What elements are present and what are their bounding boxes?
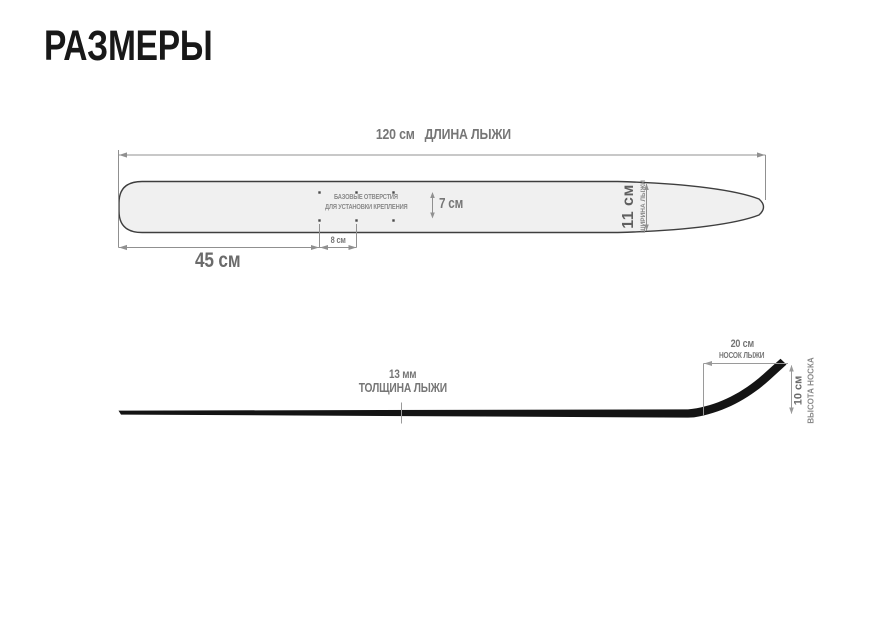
tip-height-caption: ВЫСОТА НОСКА bbox=[806, 357, 815, 423]
thickness-dimension-label: 13 мм ТОЛЩИНА ЛЫЖИ bbox=[323, 368, 483, 395]
holes-note-line2: ДЛЯ УСТАНОВКИ КРЕПЛЕНИЯ bbox=[325, 203, 407, 213]
length-value: 120 см bbox=[375, 126, 414, 143]
length-dimension-label: 120 смДЛИНА ЛЫЖИ bbox=[293, 126, 593, 143]
width-dimension-label: 11 см ШИРИНА ЛЫЖИ bbox=[573, 146, 693, 266]
hole-column-spacing-label: 8 см bbox=[313, 235, 363, 245]
tail-to-holes-label: 45 см bbox=[158, 249, 278, 273]
width-value: 11 см bbox=[619, 184, 637, 229]
width-caption: ШИРИНА ЛЫЖИ bbox=[639, 180, 646, 233]
page-title: РАЗМЕРЫ bbox=[44, 24, 260, 68]
length-caption: ДЛИНА ЛЫЖИ bbox=[424, 126, 510, 143]
thickness-caption: ТОЛЩИНА ЛЫЖИ bbox=[359, 381, 447, 395]
thickness-value: 13 мм bbox=[389, 368, 416, 381]
diagram-drawing bbox=[0, 0, 875, 619]
ski-dimensions-diagram: РАЗМЕРЫ 120 смДЛИНА ЛЫЖИ БАЗОВЫЕ ОТВЕРСТ… bbox=[0, 0, 875, 619]
tip-height-dimension-label: 10 см ВЫСОТА НОСКА bbox=[744, 330, 864, 450]
hole-row-gap-label: 7 см bbox=[439, 195, 470, 212]
holes-note-line1: БАЗОВЫЕ ОТВЕРСТИЯ bbox=[334, 193, 398, 203]
binding-holes-note: БАЗОВЫЕ ОТВЕРСТИЯ ДЛЯ УСТАНОВКИ КРЕПЛЕНИ… bbox=[286, 193, 446, 212]
tip-height-value: 10 см bbox=[792, 375, 804, 405]
